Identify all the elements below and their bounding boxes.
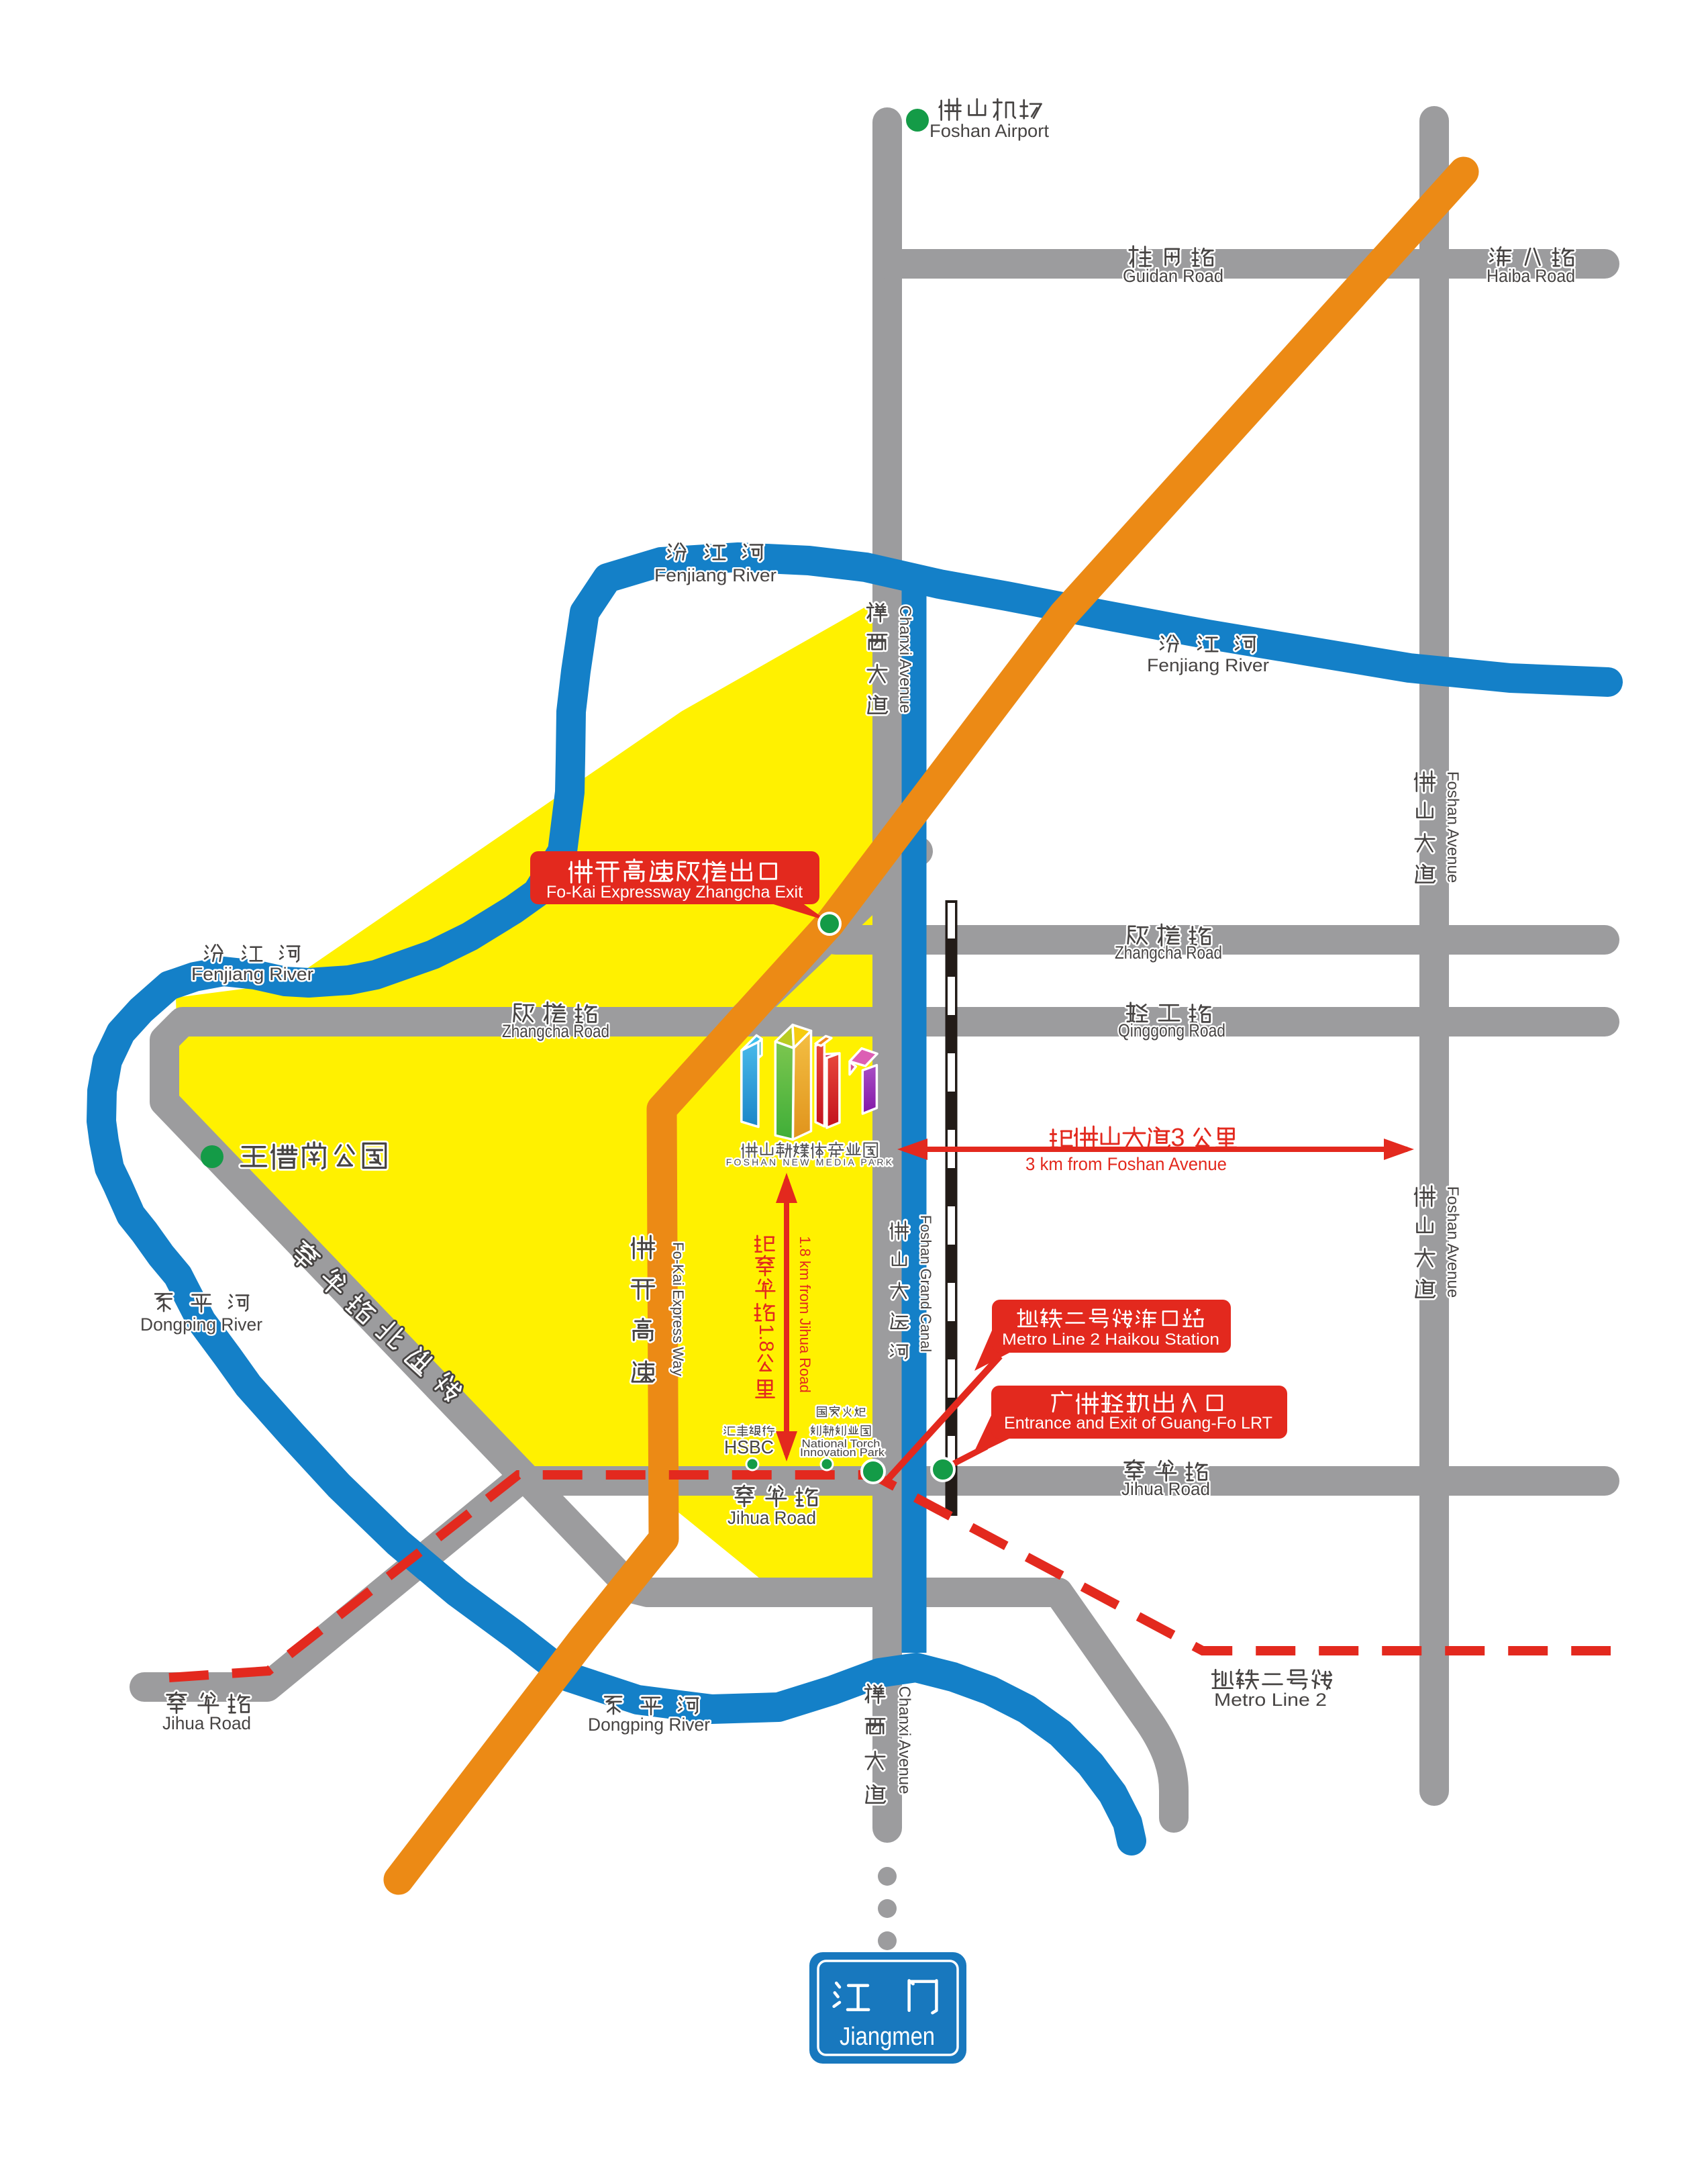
svg-text:Fo-Kai Expressway Zhangcha Exi: Fo-Kai Expressway Zhangcha Exit: [546, 883, 803, 902]
svg-text:Zhangcha Road: Zhangcha Road: [1115, 943, 1222, 963]
svg-text:Chanxi Avenue: Chanxi Avenue: [895, 1686, 913, 1794]
svg-text:Dongping River: Dongping River: [140, 1314, 262, 1335]
svg-text:Foshan Avenue: Foshan Avenue: [1444, 771, 1462, 883]
svg-text:Fenjiang River: Fenjiang River: [191, 964, 313, 984]
svg-text:1.8 km from Jihua Road: 1.8 km from Jihua Road: [797, 1236, 813, 1393]
svg-text:Foshan Avenue: Foshan Avenue: [1444, 1186, 1462, 1298]
svg-text:Zhangcha Road: Zhangcha Road: [502, 1021, 609, 1041]
svg-text:Qinggong Road: Qinggong Road: [1118, 1020, 1225, 1041]
svg-text:Jihua Road: Jihua Road: [162, 1713, 251, 1733]
svg-text:Innovation Park: Innovation Park: [800, 1446, 885, 1459]
svg-text:FOSHAN NEW MEDIA PARK: FOSHAN NEW MEDIA PARK: [726, 1157, 895, 1167]
svg-text:Chanxi Avenue: Chanxi Avenue: [896, 605, 914, 713]
svg-text:Foshan Airport: Foshan Airport: [930, 121, 1050, 141]
svg-text:Dongping River: Dongping River: [588, 1715, 710, 1735]
svg-text:Fenjiang River: Fenjiang River: [1147, 655, 1269, 675]
svg-text:Jiangmen: Jiangmen: [840, 2023, 935, 2051]
svg-text:Fo-Kai Express Way: Fo-Kai Express Way: [670, 1242, 687, 1376]
svg-text:1.8: 1.8: [755, 1324, 777, 1352]
svg-text:HSBC: HSBC: [724, 1437, 774, 1457]
svg-text:3: 3: [1170, 1124, 1185, 1152]
svg-text:Jihua Road: Jihua Road: [727, 1508, 816, 1528]
svg-text:Foshan Grand Canal: Foshan Grand Canal: [917, 1215, 934, 1352]
svg-text:Jihua Road: Jihua Road: [1121, 1479, 1210, 1499]
svg-text:Metro Line 2: Metro Line 2: [1214, 1690, 1327, 1710]
svg-text:Haiba Road: Haiba Road: [1487, 266, 1575, 286]
svg-text:Metro Line 2 Haikou Station: Metro Line 2 Haikou Station: [1002, 1331, 1219, 1349]
svg-text:3 km from Foshan Avenue: 3 km from Foshan Avenue: [1025, 1154, 1227, 1174]
svg-text:Guidan Road: Guidan Road: [1123, 266, 1223, 286]
svg-text:Fenjiang River: Fenjiang River: [654, 565, 776, 585]
svg-text:Entrance and Exit of Guang-Fo: Entrance and Exit of Guang-Fo LRT: [1004, 1414, 1272, 1433]
